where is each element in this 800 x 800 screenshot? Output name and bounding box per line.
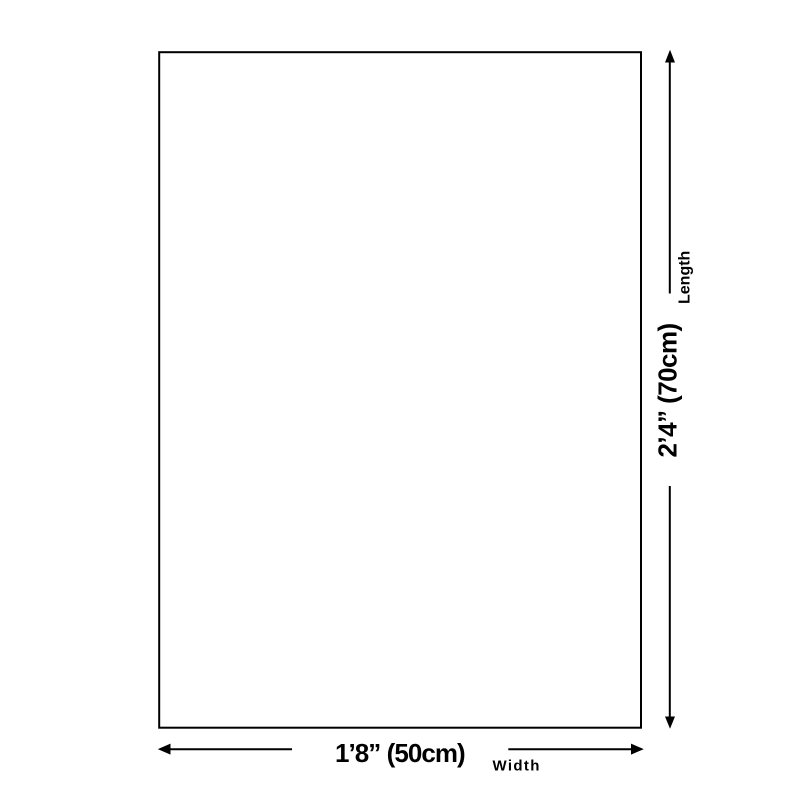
svg-text:Length: Length: [677, 251, 694, 304]
svg-text:1’8” (50cm): 1’8” (50cm): [335, 738, 465, 768]
svg-text:2’4” (70cm): 2’4” (70cm): [653, 323, 683, 457]
svg-text:Width: Width: [493, 758, 541, 775]
